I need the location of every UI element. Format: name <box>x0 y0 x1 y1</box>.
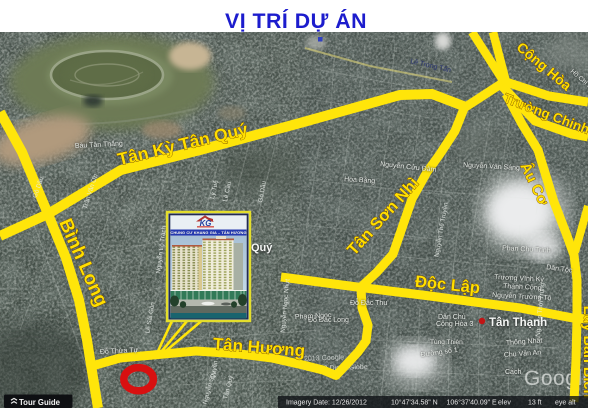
svg-text:10°47'34.58" N: 10°47'34.58" N <box>391 399 438 407</box>
svg-text:Tour Guide: Tour Guide <box>19 398 61 407</box>
svg-text:Quý: Quý <box>251 242 273 254</box>
svg-text:VỊ TRÍ DỰ ÁN: VỊ TRÍ DỰ ÁN <box>225 8 367 33</box>
svg-text:elev: elev <box>498 400 511 407</box>
svg-text:Imagery Date: 12/26/2012: Imagery Date: 12/26/2012 <box>286 400 367 407</box>
svg-text:Đỗ Đắc Thu: Đỗ Đắc Thu <box>350 298 387 307</box>
svg-text:Cộng Hòa 3: Cộng Hòa 3 <box>436 321 473 328</box>
svg-text:Cách: Cách <box>505 369 521 376</box>
svg-text:CHUNG CƯ KHANG GIA – TÂN HƯƠNG: CHUNG CƯ KHANG GIA – TÂN HƯƠNG <box>170 230 246 235</box>
svg-text:Tùng Thiện: Tùng Thiện <box>430 339 463 346</box>
svg-text:Tân Thạnh: Tân Thạnh <box>489 317 547 329</box>
svg-text:106°37'40.09" E: 106°37'40.09" E <box>447 399 498 407</box>
svg-text:13 ft: 13 ft <box>528 400 542 407</box>
svg-text:Dân Chủ: Dân Chủ <box>438 313 466 321</box>
svg-text:eye alt: eye alt <box>555 400 576 407</box>
